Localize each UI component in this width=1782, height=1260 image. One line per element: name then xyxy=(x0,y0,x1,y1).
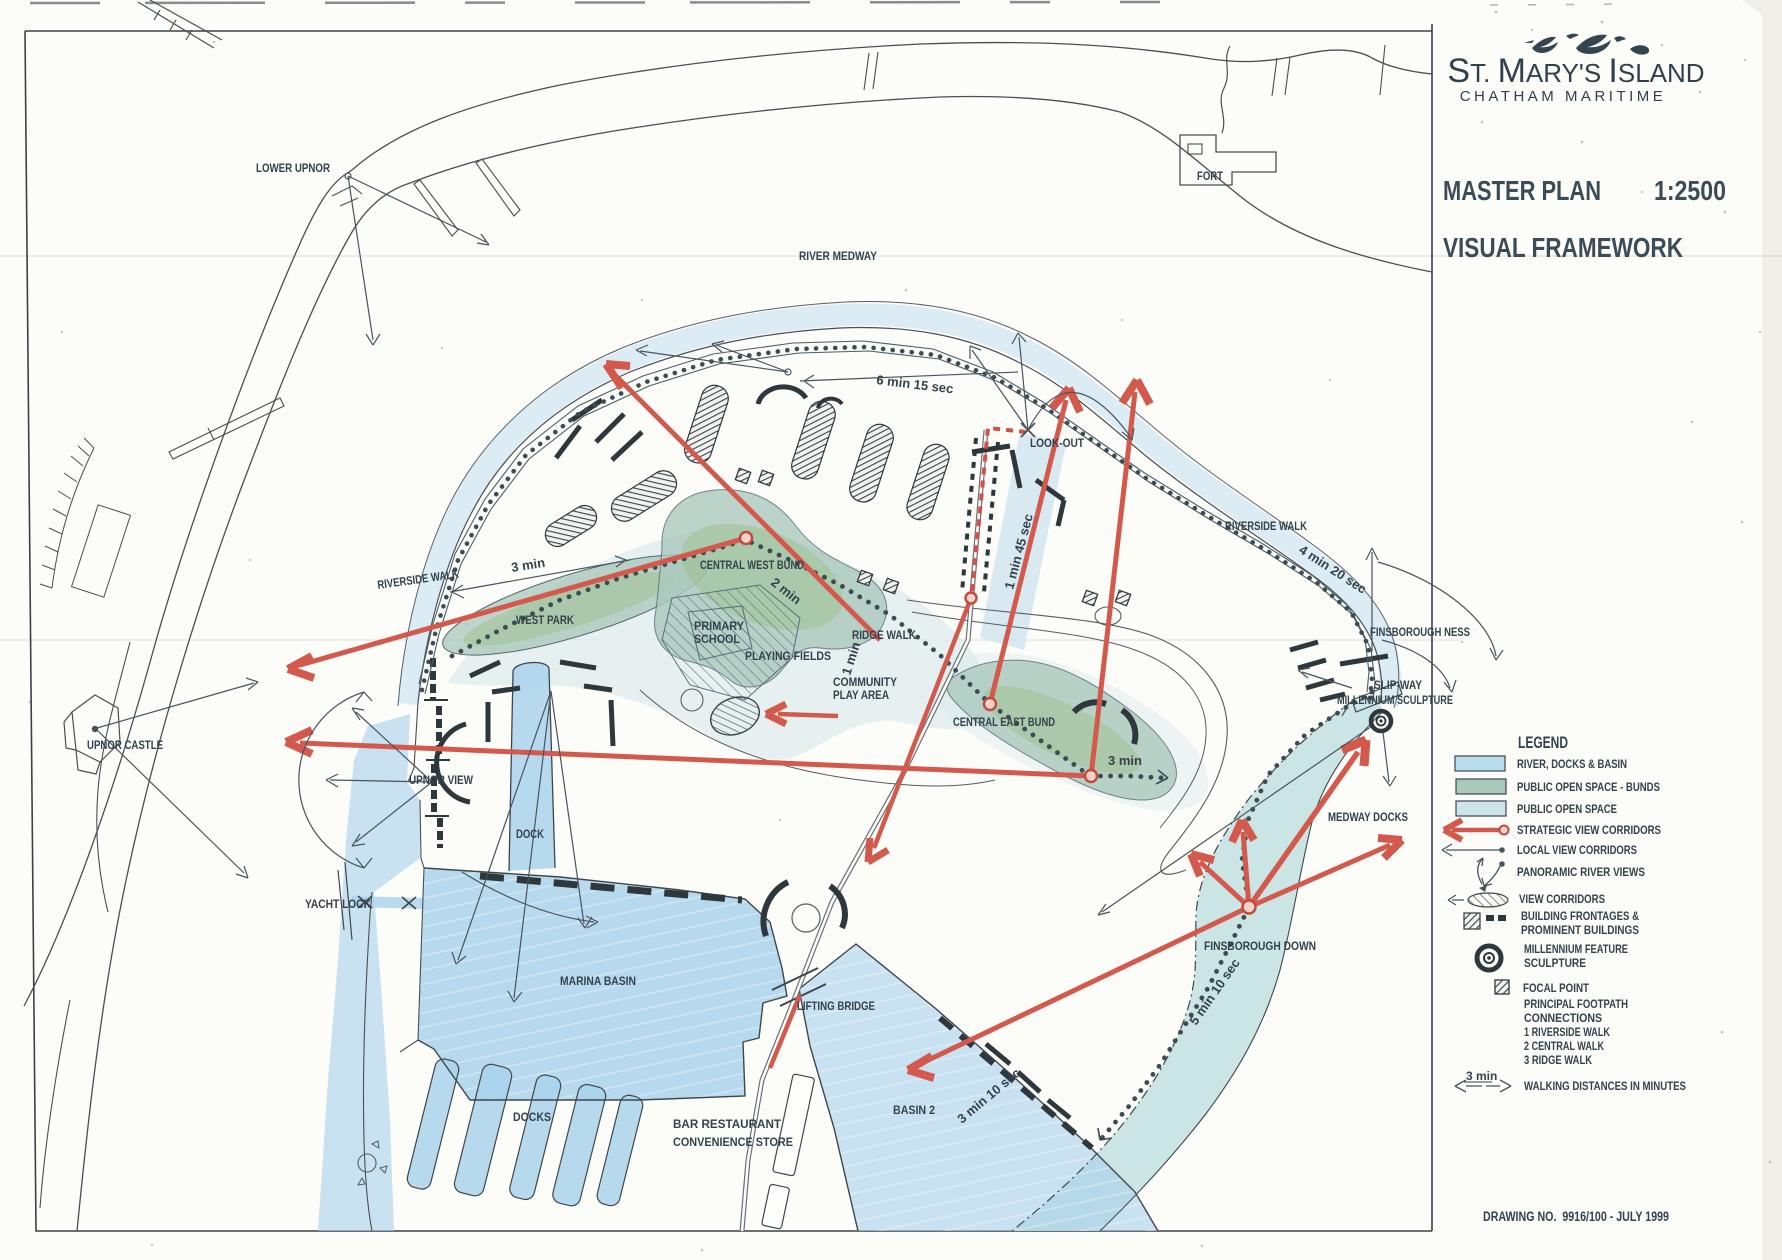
svg-text:MASTER PLAN: MASTER PLAN xyxy=(1443,175,1601,206)
svg-text:VISUAL FRAMEWORK: VISUAL FRAMEWORK xyxy=(1443,232,1683,263)
svg-text:RIVER MEDWAY: RIVER MEDWAY xyxy=(799,249,877,263)
svg-text:FORT: FORT xyxy=(1197,169,1224,183)
svg-text:MILLENNIUM SCULPTURE: MILLENNIUM SCULPTURE xyxy=(1337,693,1453,707)
svg-text:1 RIVERSIDE WALK: 1 RIVERSIDE WALK xyxy=(1524,1027,1611,1039)
svg-text:ST. MARY'S ISLAND: ST. MARY'S ISLAND xyxy=(1447,52,1704,90)
svg-text:PROMINENT BUILDINGS: PROMINENT BUILDINGS xyxy=(1521,925,1639,937)
svg-text:RIDGE WALK: RIDGE WALK xyxy=(852,628,916,642)
svg-text:DOCKS: DOCKS xyxy=(513,1110,551,1124)
svg-text:LIFTING BRIDGE: LIFTING BRIDGE xyxy=(797,999,875,1013)
svg-text:3 min: 3 min xyxy=(1108,753,1142,768)
svg-text:BUILDING FRONTAGES &: BUILDING FRONTAGES & xyxy=(1521,911,1639,923)
svg-text:RIVER, DOCKS & BASIN: RIVER, DOCKS & BASIN xyxy=(1517,759,1627,771)
svg-text:YACHT LOCK: YACHT LOCK xyxy=(305,897,371,911)
svg-text:MARINA BASIN: MARINA BASIN xyxy=(560,974,636,988)
svg-text:FINSBOROUGH NESS: FINSBOROUGH NESS xyxy=(1370,625,1470,639)
svg-text:PLAY AREA: PLAY AREA xyxy=(833,688,889,702)
svg-text:RIVERSIDE WALK: RIVERSIDE WALK xyxy=(1225,519,1307,533)
svg-text:PRINCIPAL FOOTPATH: PRINCIPAL FOOTPATH xyxy=(1524,999,1628,1011)
svg-text:3 RIDGE WALK: 3 RIDGE WALK xyxy=(1524,1055,1593,1067)
svg-text:WALKING DISTANCES IN MINUTES: WALKING DISTANCES IN MINUTES xyxy=(1524,1081,1686,1093)
svg-text:LOCAL VIEW CORRIDORS: LOCAL VIEW CORRIDORS xyxy=(1517,845,1637,857)
svg-text:DOCK: DOCK xyxy=(516,827,544,841)
svg-text:CONNECTIONS: CONNECTIONS xyxy=(1524,1013,1602,1025)
svg-text:2 CENTRAL WALK: 2 CENTRAL WALK xyxy=(1524,1041,1605,1053)
svg-text:FOCAL POINT: FOCAL POINT xyxy=(1523,983,1589,995)
svg-text:MILLENNIUM FEATURE: MILLENNIUM FEATURE xyxy=(1524,944,1628,956)
svg-text:BAR RESTAURANT: BAR RESTAURANT xyxy=(673,1117,782,1131)
svg-text:LOWER UPNOR: LOWER UPNOR xyxy=(256,161,330,175)
svg-text:PUBLIC OPEN SPACE - BUNDS: PUBLIC OPEN SPACE - BUNDS xyxy=(1517,782,1660,794)
svg-text:FINSBOROUGH DOWN: FINSBOROUGH DOWN xyxy=(1204,939,1316,953)
svg-text:PUBLIC OPEN SPACE: PUBLIC OPEN SPACE xyxy=(1517,804,1617,816)
svg-text:SLIP-WAY: SLIP-WAY xyxy=(1374,678,1422,692)
svg-text:LOOK-OUT: LOOK-OUT xyxy=(1030,436,1085,450)
svg-text:PLAYING FIELDS: PLAYING FIELDS xyxy=(745,649,831,663)
svg-text:DRAWING NO. 9916/100 - JULY 1: DRAWING NO. 9916/100 - JULY 1999 xyxy=(1483,1209,1669,1224)
svg-text:CENTRAL WEST BUND: CENTRAL WEST BUND xyxy=(700,558,804,572)
svg-text:1:2500: 1:2500 xyxy=(1654,175,1726,206)
svg-text:BASIN 2: BASIN 2 xyxy=(893,1103,935,1117)
svg-text:CHATHAM MARITIME: CHATHAM MARITIME xyxy=(1460,88,1667,105)
svg-text:COMMUNITY: COMMUNITY xyxy=(833,675,897,689)
svg-text:WEST PARK: WEST PARK xyxy=(516,613,574,627)
svg-text:STRATEGIC VIEW CORRIDORS: STRATEGIC VIEW CORRIDORS xyxy=(1517,825,1661,837)
svg-text:CENTRAL EAST BUND: CENTRAL EAST BUND xyxy=(953,715,1055,729)
svg-text:CONVENIENCE STORE: CONVENIENCE STORE xyxy=(673,1135,793,1149)
svg-text:3 min: 3 min xyxy=(1466,1069,1497,1083)
svg-text:MEDWAY DOCKS: MEDWAY DOCKS xyxy=(1328,810,1408,824)
svg-text:VIEW CORRIDORS: VIEW CORRIDORS xyxy=(1519,894,1605,906)
svg-text:PRIMARY: PRIMARY xyxy=(694,619,744,633)
svg-text:SCULPTURE: SCULPTURE xyxy=(1524,958,1586,970)
svg-text:UPNOR VIEW: UPNOR VIEW xyxy=(409,773,474,787)
svg-text:PANORAMIC RIVER VIEWS: PANORAMIC RIVER VIEWS xyxy=(1517,867,1645,879)
svg-text:SCHOOL: SCHOOL xyxy=(694,632,740,646)
svg-text:UPNOR CASTLE: UPNOR CASTLE xyxy=(87,738,163,752)
svg-text:LEGEND: LEGEND xyxy=(1518,733,1568,752)
